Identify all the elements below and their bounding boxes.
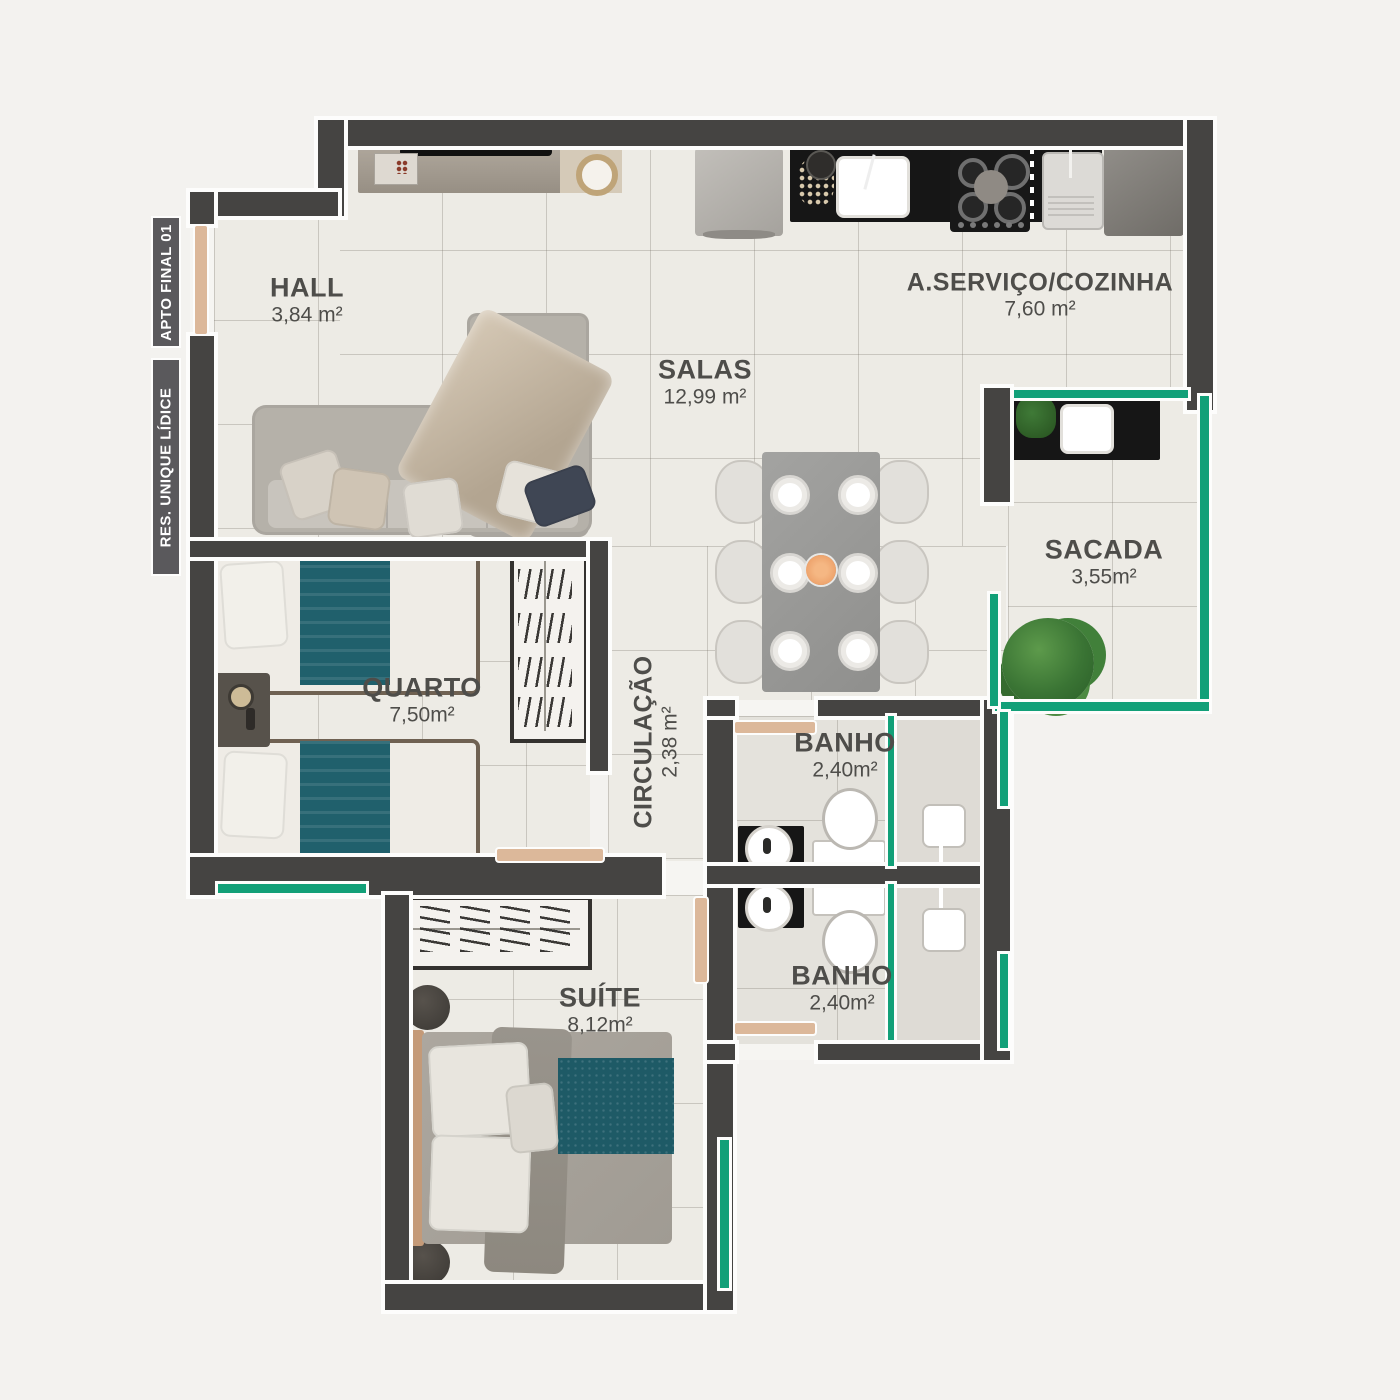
suite-door-opening	[662, 861, 707, 895]
banho-1-toilet	[822, 788, 878, 850]
banho-2-shower-head	[922, 908, 966, 952]
suite-nightstand-top	[405, 985, 450, 1030]
sofa-pillow	[326, 466, 392, 532]
window-banho-1	[1000, 712, 1008, 806]
badge-residencia: RES. UNIQUE LÍDICE	[153, 360, 179, 574]
balcony-counter-plant	[1016, 396, 1056, 438]
window-balcony-left	[990, 594, 998, 706]
wardrobe-hangers	[500, 906, 530, 952]
suite-wardrobe	[408, 896, 592, 970]
quarto-bed-1-blanket	[300, 551, 390, 685]
suite-door	[695, 898, 707, 982]
wardrobe-hangers	[420, 906, 450, 952]
banho-1-shower-head	[922, 804, 966, 848]
room-area: 12,99 m²	[658, 385, 752, 408]
quarto-wardrobe	[510, 557, 588, 743]
quarto-bed-2-pillow	[220, 750, 288, 839]
laundry-tank-ridges	[1048, 196, 1094, 220]
suite-pillow-small	[505, 1082, 560, 1155]
window-balcony-bottom	[995, 702, 1209, 711]
wall-suite-left	[385, 895, 409, 1310]
kitchen-sink	[836, 156, 910, 218]
window-balcony-top	[1014, 390, 1188, 398]
room-name: SACADA	[1045, 536, 1164, 566]
banho-2-shower-arm	[939, 888, 943, 908]
wall-bath-top-a	[707, 700, 735, 716]
window-suite	[720, 1140, 729, 1288]
quarto-lamp	[228, 684, 254, 710]
counter-divider-dashed	[1030, 148, 1034, 222]
wall-left-upper	[190, 192, 214, 224]
room-area: 8,12m²	[559, 1013, 641, 1036]
counter-jar	[806, 150, 836, 180]
badge-label: RES. UNIQUE LÍDICE	[158, 387, 175, 547]
laundry-faucet	[1069, 150, 1072, 178]
room-label-hall: HALL 3,84 m²	[270, 274, 344, 327]
room-area: 7,50m²	[362, 703, 482, 726]
room-name: A.SERVIÇO/COZINHA	[907, 270, 1173, 298]
balcony-sink	[1060, 404, 1114, 454]
banho-2-door	[735, 1023, 815, 1034]
plate	[770, 631, 810, 671]
wardrobe-hangers	[518, 613, 572, 643]
wardrobe-hangers	[518, 569, 572, 599]
room-area: 2,40m²	[794, 758, 896, 781]
wardrobe-hangers	[540, 906, 570, 952]
suite-teal-throw	[558, 1058, 674, 1154]
plate	[838, 475, 878, 515]
room-name: BANHO	[794, 729, 896, 759]
banho-1-door-opening	[735, 700, 818, 716]
sofa-pillow	[401, 476, 464, 539]
wall-bath-top-b	[818, 700, 1010, 716]
banho-1-faucet	[763, 838, 771, 854]
wall-bath-middle	[707, 866, 1010, 884]
room-area: 2,38 m²	[658, 655, 681, 828]
room-label-quarto: QUARTO 7,50m²	[362, 674, 482, 727]
plate	[770, 475, 810, 515]
quarto-bed-1-pillow	[219, 560, 289, 650]
cooktop-center-plate	[974, 170, 1008, 204]
badge-apto-final: APTO FINAL 01	[153, 218, 179, 346]
wall-bath-bottom-a	[707, 1044, 735, 1060]
plate	[838, 631, 878, 671]
room-area: 7,60 m²	[907, 297, 1173, 320]
room-label-servico-cozinha: A.SERVIÇO/COZINHA 7,60 m²	[907, 270, 1173, 321]
window-balcony-right	[1200, 396, 1209, 710]
banho-2-faucet	[763, 897, 771, 913]
console-decor-flower	[396, 160, 408, 174]
entry-door	[195, 226, 207, 334]
room-label-suite: SUÍTE 8,12m²	[559, 984, 641, 1037]
badge-label: APTO FINAL 01	[158, 224, 175, 341]
floor-plan: HALL 3,84 m² SALAS 12,99 m² A.SERVIÇO/CO…	[0, 0, 1400, 1400]
banho-2-door-opening	[735, 1044, 818, 1060]
room-name: SUÍTE	[559, 984, 641, 1014]
room-area: 3,55m²	[1045, 565, 1164, 588]
room-area: 3,84 m²	[270, 303, 344, 326]
quarto-remote	[246, 708, 255, 730]
room-label-banho-2: BANHO 2,40m²	[791, 962, 893, 1015]
tv	[400, 147, 552, 156]
wall-balcony-left-stub	[984, 388, 1010, 502]
plate	[838, 553, 878, 593]
dining-chair	[873, 460, 929, 524]
cooktop	[950, 148, 1030, 232]
room-label-sacada: SACADA 3,55m²	[1045, 536, 1164, 589]
room-label-banho-1: BANHO 2,40m²	[794, 729, 896, 782]
wall-bath-bottom-b	[818, 1044, 1010, 1060]
room-name: SALAS	[658, 356, 752, 386]
balcony-plant	[1002, 618, 1094, 708]
wall-left-main	[190, 336, 214, 864]
window-banho-2	[1000, 954, 1008, 1048]
cooktop-knob	[958, 222, 964, 228]
cooktop-knob	[1006, 222, 1012, 228]
wardrobe-hangers	[518, 657, 572, 687]
dining-chair	[873, 620, 929, 684]
wall-top	[335, 120, 1211, 146]
ceiling-light	[576, 154, 618, 196]
room-name: BANHO	[791, 962, 893, 992]
wardrobe-hangers	[518, 697, 572, 727]
wall-suite-bottom	[385, 1284, 733, 1310]
cooktop-knob	[1018, 222, 1024, 228]
cooktop-knob	[970, 222, 976, 228]
suite-nightstand-bottom	[405, 1240, 450, 1285]
fridge	[695, 148, 783, 236]
wardrobe-hangers	[460, 906, 490, 952]
washing-machine	[1104, 146, 1184, 236]
room-area: 2,40m²	[791, 991, 893, 1014]
room-name: QUARTO	[362, 674, 482, 704]
cooktop-knob	[994, 222, 1000, 228]
fridge-handle	[703, 230, 775, 239]
banho-1-shower-arm	[939, 844, 943, 864]
fruit-bowl	[806, 555, 836, 585]
room-label-circulacao: CIRCULAÇÃO 2,38 m²	[631, 655, 682, 828]
plate	[770, 553, 810, 593]
wall-hall-quarto-divider	[190, 541, 608, 557]
room-label-salas: SALAS 12,99 m²	[658, 356, 752, 409]
wall-kitchen-right	[1187, 120, 1213, 410]
room-name: CIRCULAÇÃO	[631, 655, 659, 828]
dining-chair	[873, 540, 929, 604]
window-quarto	[218, 884, 366, 893]
quarto-door	[497, 849, 603, 861]
wall-quarto-right	[590, 541, 608, 771]
room-name: HALL	[270, 274, 344, 304]
quarto-bed-2-blanket	[300, 741, 390, 873]
cooktop-knob	[982, 222, 988, 228]
